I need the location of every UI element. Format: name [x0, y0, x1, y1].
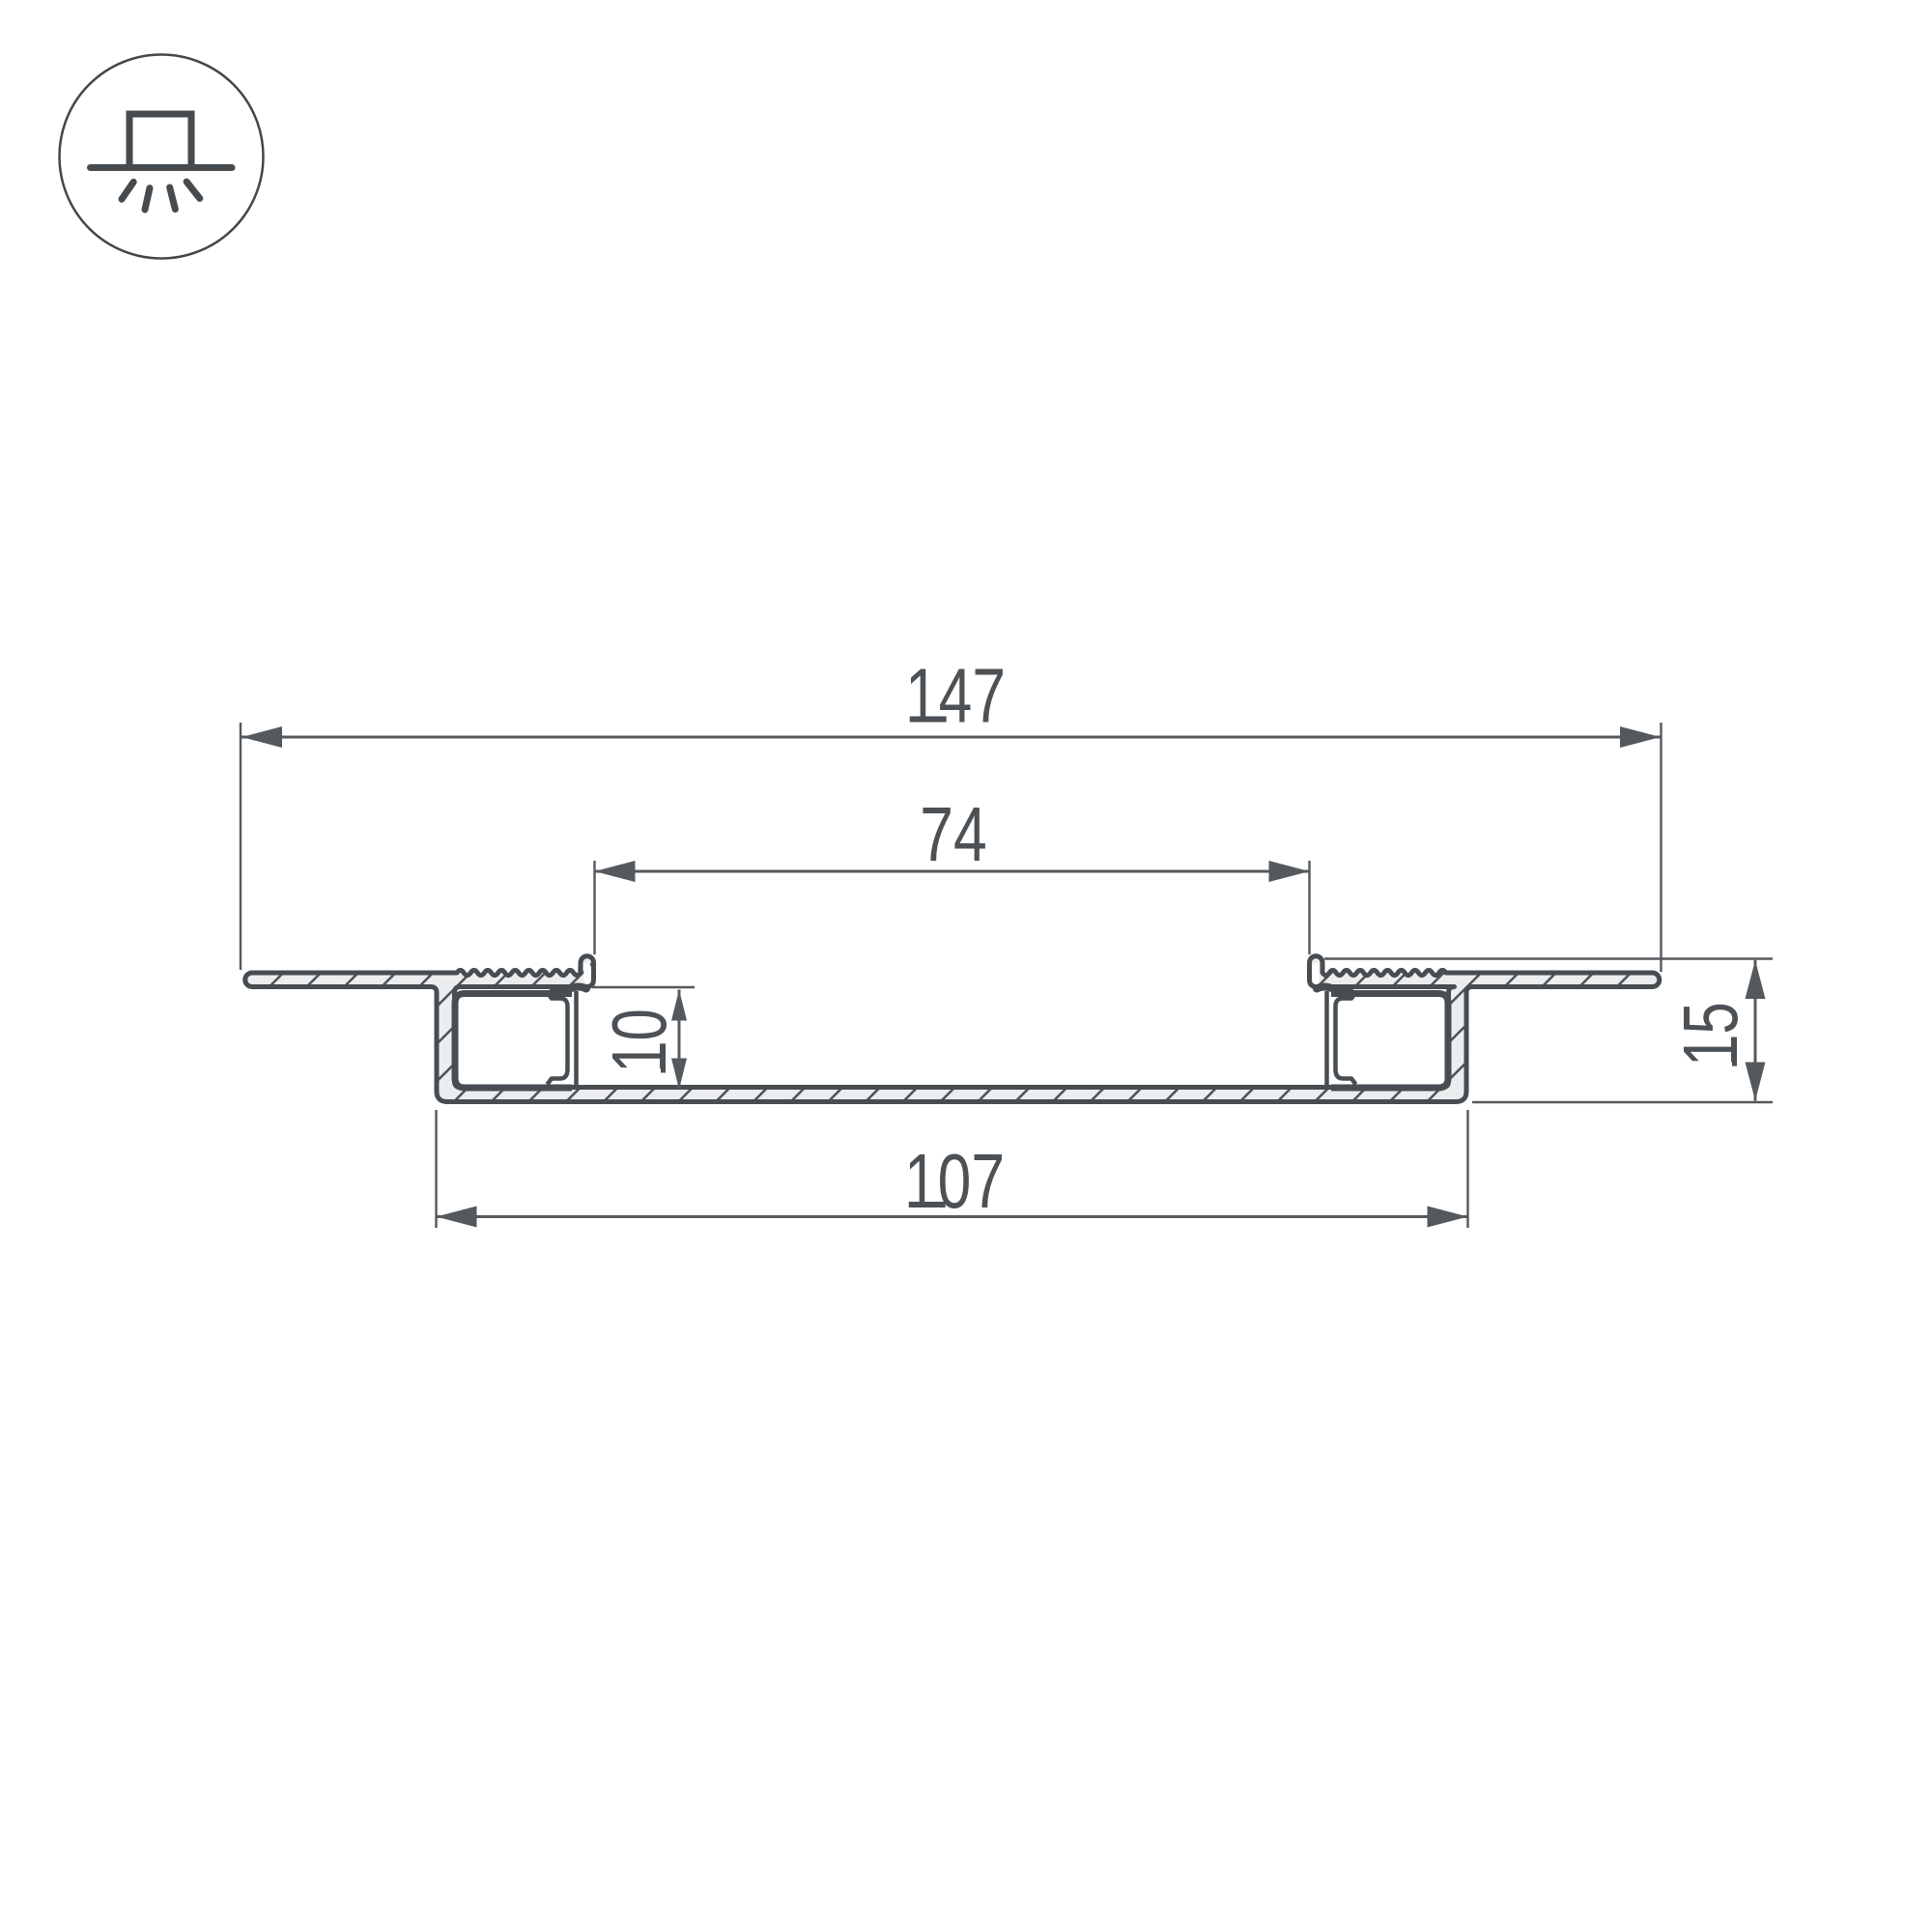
svg-text:74: 74 [920, 792, 986, 878]
svg-text:15: 15 [1667, 1002, 1753, 1066]
svg-text:107: 107 [904, 1139, 1005, 1225]
svg-text:147: 147 [905, 653, 1006, 739]
svg-text:10: 10 [596, 1009, 682, 1073]
